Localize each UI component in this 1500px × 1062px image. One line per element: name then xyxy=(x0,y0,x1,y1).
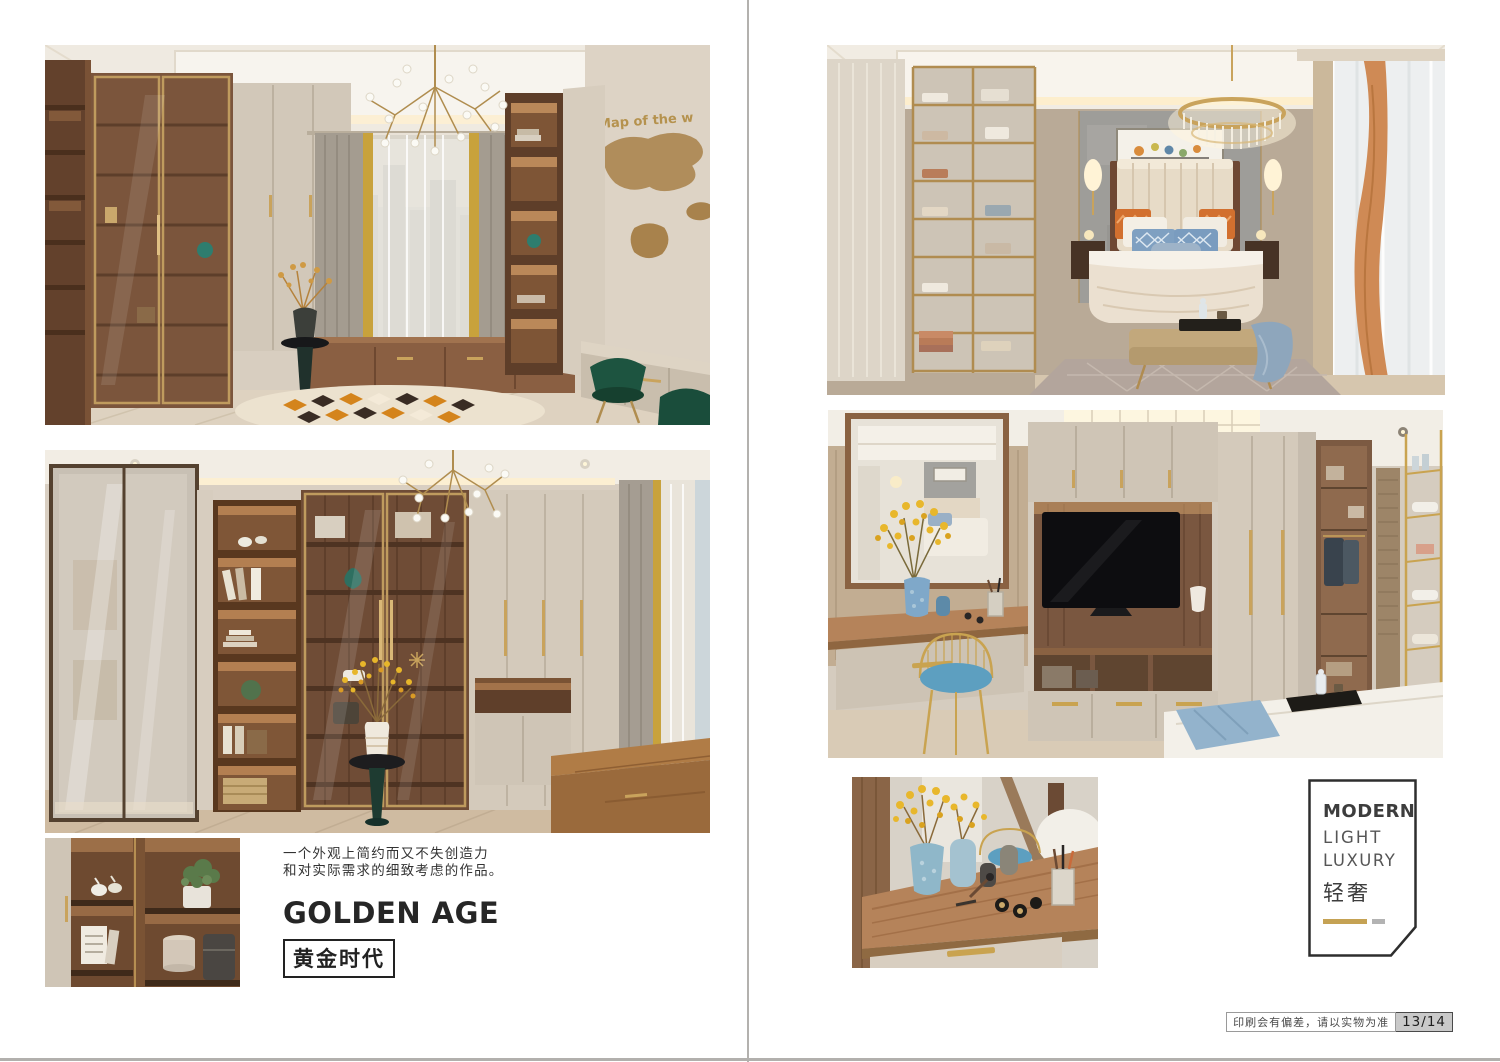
page-number: 13/14 xyxy=(1396,1012,1453,1032)
lit-niche-cabinet xyxy=(505,93,563,375)
style-label-modern: MODERN xyxy=(1323,801,1415,822)
photo-cabinet-detail xyxy=(45,838,240,987)
bed xyxy=(1089,159,1263,323)
series-title-cn: 黄金时代 xyxy=(283,939,395,978)
print-disclaimer: 印刷会有偏差，请以实物为准 xyxy=(1226,1012,1396,1032)
style-label-underline xyxy=(1323,919,1385,924)
tv-wall-illustration xyxy=(828,410,1443,758)
series-title-en: GOLDEN AGE xyxy=(283,896,613,930)
wall-strip xyxy=(197,490,213,810)
style-label-cn: 轻奢 xyxy=(1323,877,1371,907)
left-wood-shelf xyxy=(45,60,91,425)
intro-line-2: 和对实际需求的细致考虑的作品。 xyxy=(283,863,613,880)
catalog-spread: Map of the w xyxy=(0,0,1500,1062)
glass-door-cabinet xyxy=(91,73,233,408)
cabinet-detail-illustration xyxy=(45,838,240,987)
style-label-luxury: LUXURY xyxy=(1323,851,1396,870)
curtains xyxy=(307,131,537,351)
open-wood-shelf xyxy=(213,500,301,812)
vanity-detail-illustration xyxy=(852,777,1098,968)
gold-underline-bar xyxy=(1323,919,1367,924)
door-panel xyxy=(1376,468,1400,714)
bookshelf-room-illustration xyxy=(45,450,710,833)
right-niche xyxy=(145,838,240,987)
style-label-light: LIGHT xyxy=(1323,828,1382,847)
beige-side-panel xyxy=(563,85,605,380)
bedroom-illustration xyxy=(827,45,1445,395)
window-right xyxy=(1297,49,1445,383)
vanity-mirror xyxy=(848,416,1006,586)
gray-underline-dash xyxy=(1372,919,1385,924)
gold-clothes-shelf xyxy=(913,67,1035,373)
photo-bedroom xyxy=(827,45,1445,395)
tv-unit xyxy=(1028,422,1218,741)
page-divider xyxy=(747,0,749,1062)
footer: 印刷会有偏差，请以实物为准 13/14 xyxy=(1226,1012,1453,1032)
photo-bookshelf-room xyxy=(45,450,710,833)
left-page-text-block: 一个外观上简约而又不失创造力 和对实际需求的细致考虑的作品。 GOLDEN AG… xyxy=(283,846,613,978)
photo-vanity-detail xyxy=(852,777,1098,968)
intro-line-1: 一个外观上简约而又不失创造力 xyxy=(283,846,613,863)
photo-study-room: Map of the w xyxy=(45,45,710,425)
style-label-box: MODERN LIGHT LUXURY 轻奢 xyxy=(1308,779,1418,958)
bottom-rule xyxy=(0,1058,1500,1061)
study-room-illustration: Map of the w xyxy=(45,45,710,425)
wardrobe xyxy=(1218,432,1316,742)
glass-sliding-door xyxy=(51,466,197,820)
left-niche xyxy=(71,838,133,987)
photo-tv-wall xyxy=(828,410,1443,758)
